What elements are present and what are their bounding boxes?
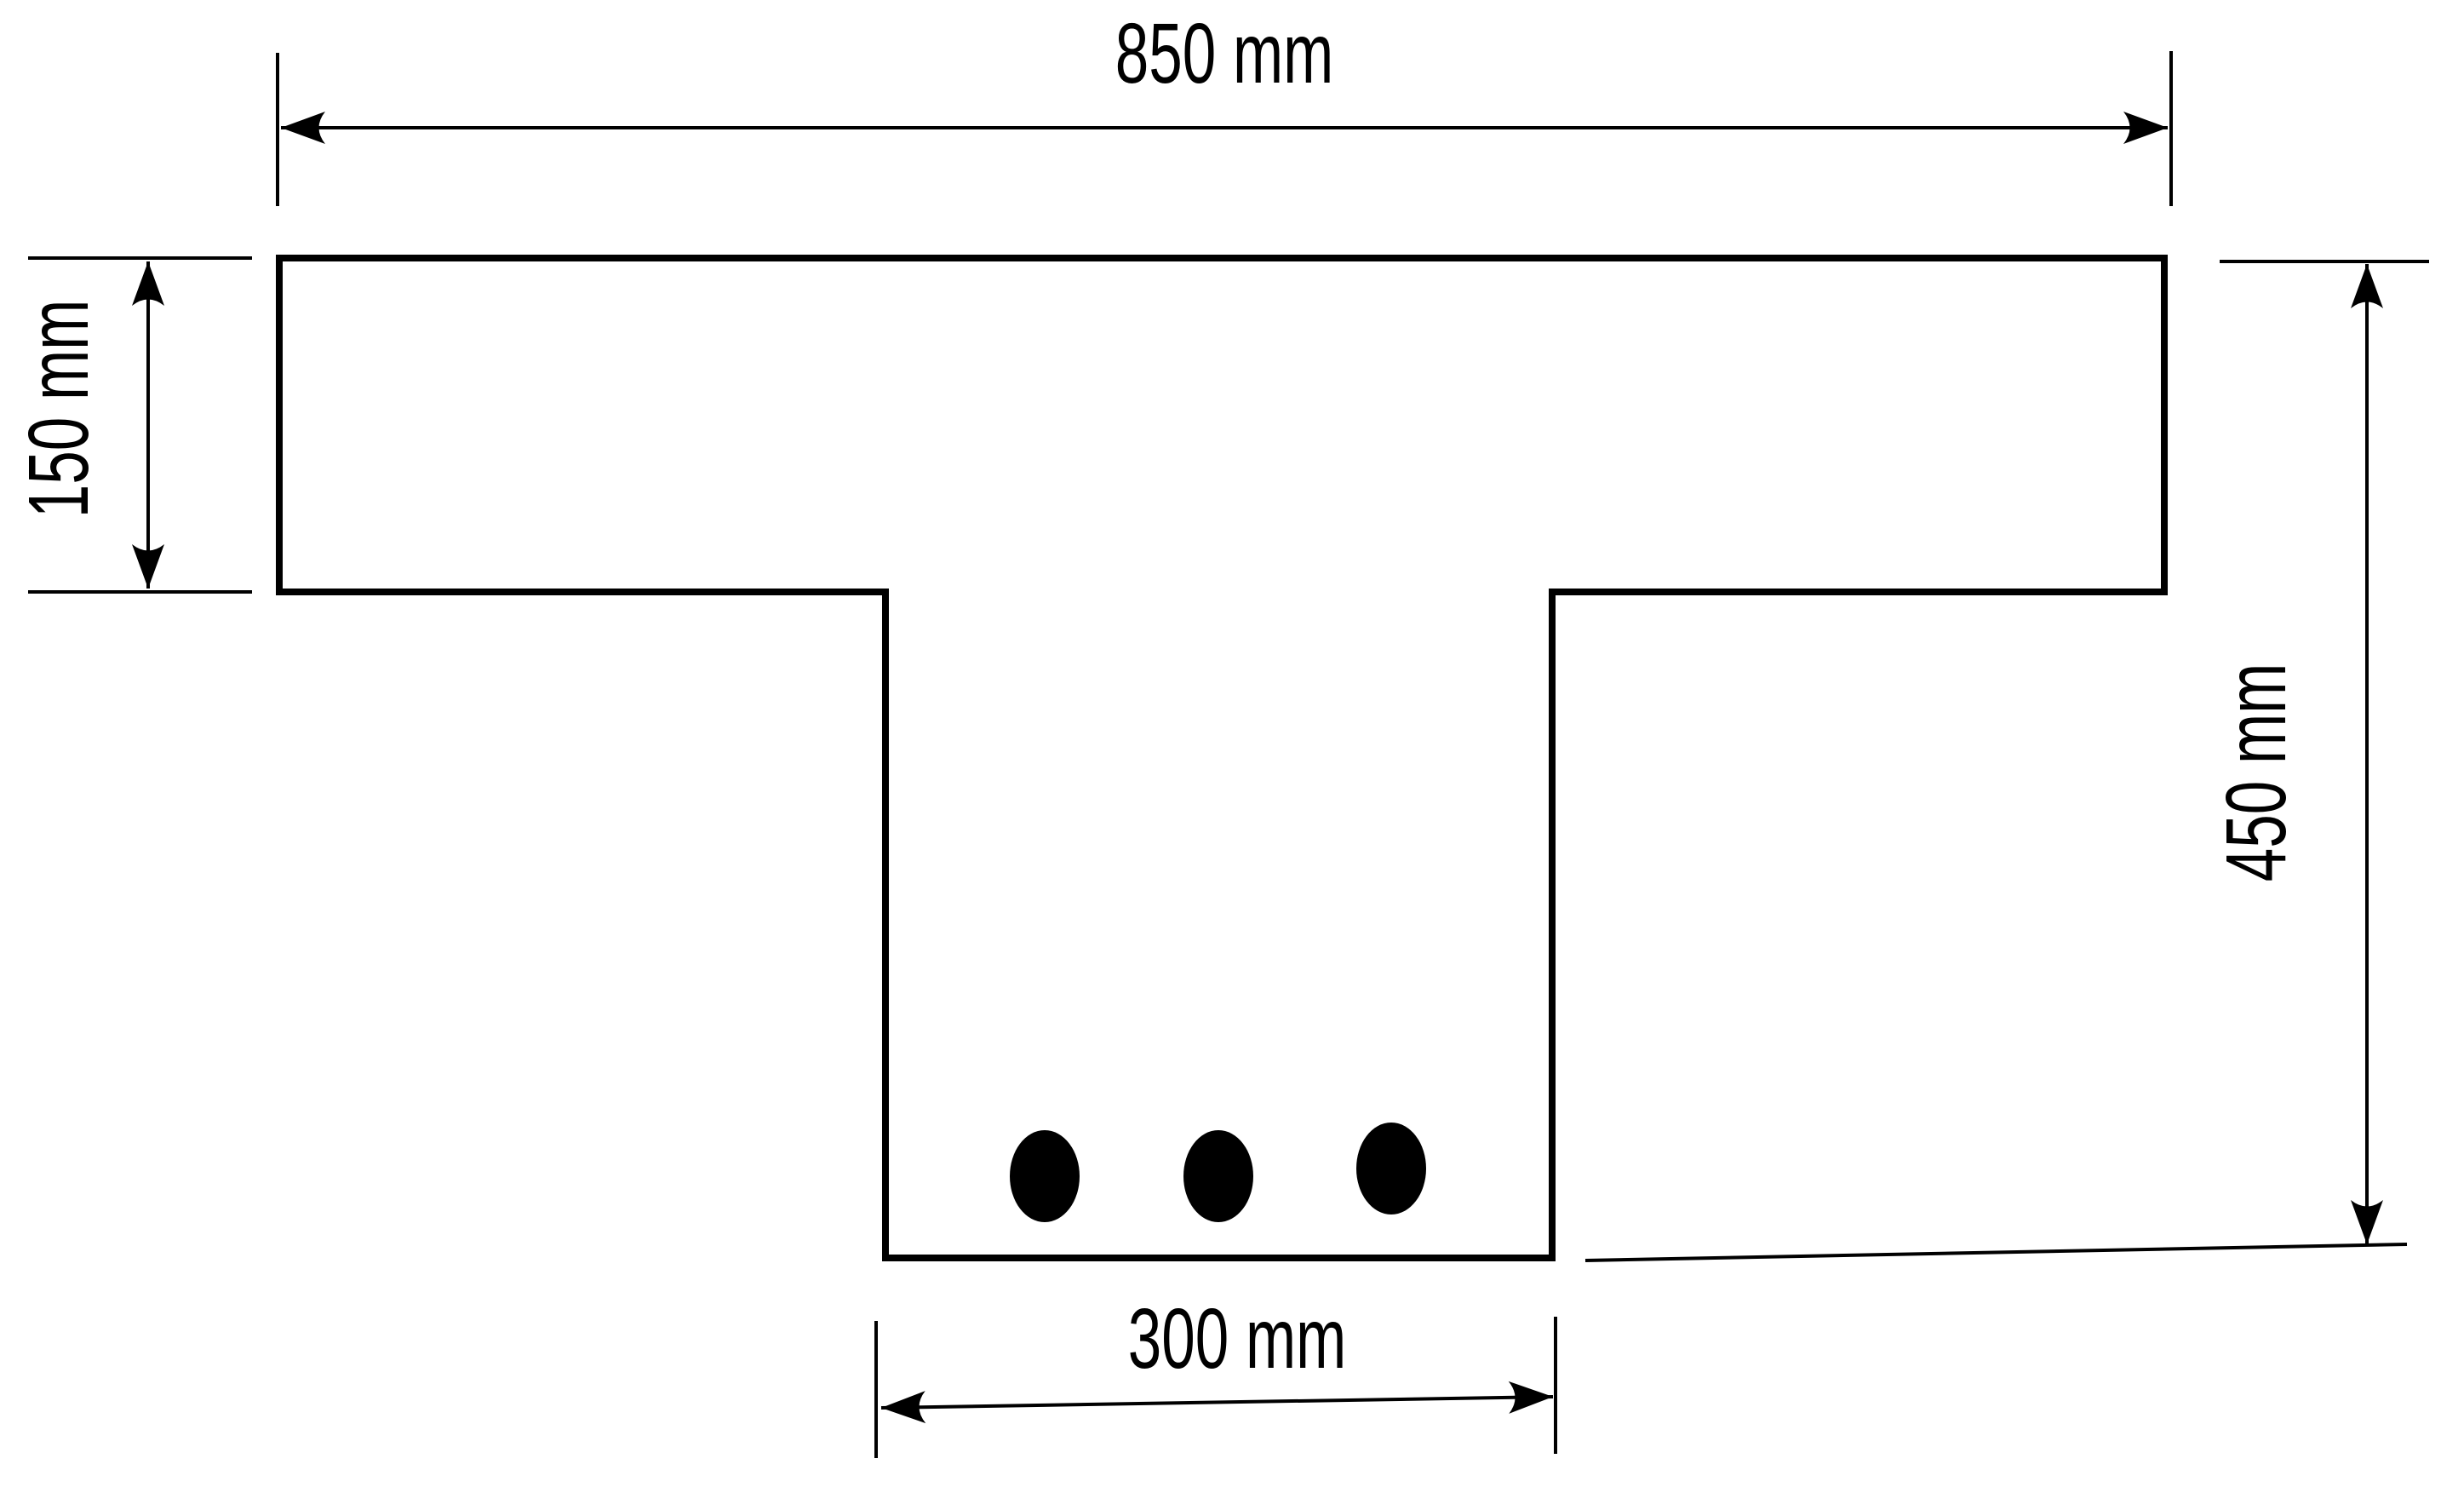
dim-850-arrowhead-left-icon xyxy=(281,112,325,144)
dim-300-line xyxy=(881,1397,1553,1408)
dim-450-label: 450 mm xyxy=(2209,663,2304,881)
dim-450-leader-bottom xyxy=(1585,1244,2407,1260)
dimension-flange-thickness: 150 mm xyxy=(11,258,252,592)
rebar-dot xyxy=(1183,1130,1253,1222)
dimension-overall-depth: 450 mm xyxy=(1585,261,2429,1260)
t-beam-cross-section-drawing: 850 mm 150 mm 450 mm 300 mm xyxy=(0,0,2464,1493)
rebar-group xyxy=(1010,1123,1426,1222)
dim-150-label: 150 mm xyxy=(11,300,106,518)
dim-450-arrowhead-top-icon xyxy=(2351,264,2383,308)
dimension-web-width: 300 mm xyxy=(876,1291,1556,1458)
dim-300-arrowhead-left-icon xyxy=(881,1391,926,1424)
rebar-dot xyxy=(1010,1130,1080,1222)
dim-850-label: 850 mm xyxy=(1115,6,1333,101)
drawing-canvas: 850 mm 150 mm 450 mm 300 mm xyxy=(0,0,2464,1493)
dim-850-arrowhead-right-icon xyxy=(2123,112,2168,144)
dimension-flange-width: 850 mm xyxy=(278,6,2171,206)
dim-150-arrowhead-top-icon xyxy=(132,261,164,306)
rebar-dot xyxy=(1356,1123,1426,1214)
dim-450-arrowhead-bottom-icon xyxy=(2351,1200,2383,1244)
dim-150-arrowhead-bottom-icon xyxy=(132,544,164,589)
dim-300-arrowhead-right-icon xyxy=(1509,1381,1554,1414)
dim-300-label: 300 mm xyxy=(1128,1291,1346,1387)
beam-outline xyxy=(279,258,2164,1258)
